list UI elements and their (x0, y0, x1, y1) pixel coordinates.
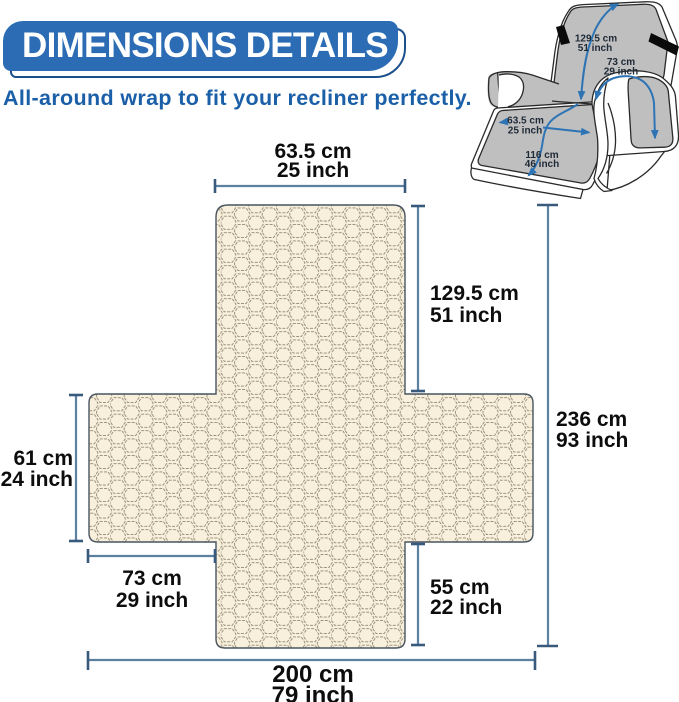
svg-text:51 inch: 51 inch (430, 304, 502, 327)
svg-text:73 cm: 73 cm (122, 567, 182, 590)
svg-text:29 inch: 29 inch (116, 589, 188, 612)
svg-text:25 inch: 25 inch (508, 126, 542, 137)
svg-text:24 inch: 24 inch (1, 468, 73, 491)
svg-text:25 inch: 25 inch (277, 159, 349, 182)
svg-text:79 inch: 79 inch (272, 682, 355, 702)
svg-text:129.5 cm: 129.5 cm (430, 282, 519, 305)
svg-text:61 cm: 61 cm (13, 447, 73, 470)
svg-text:51 inch: 51 inch (578, 43, 612, 54)
svg-text:93 inch: 93 inch (556, 429, 628, 452)
svg-text:22 inch: 22 inch (430, 596, 502, 619)
svg-text:236 cm: 236 cm (556, 408, 627, 431)
svg-text:46 inch: 46 inch (525, 159, 559, 170)
svg-text:29 inch: 29 inch (604, 66, 638, 77)
